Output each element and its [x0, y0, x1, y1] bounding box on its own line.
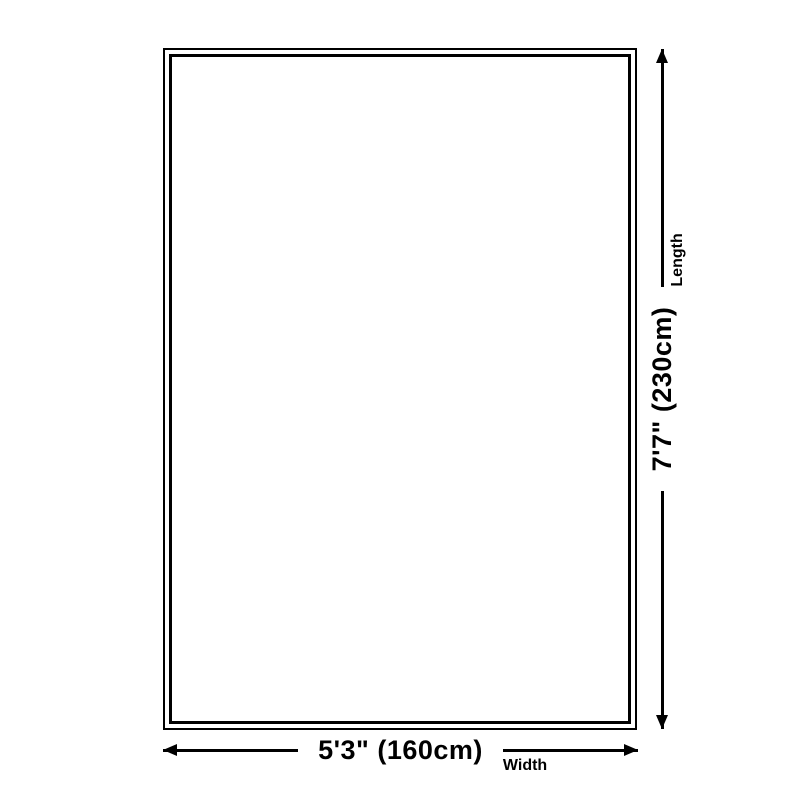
width-dimension-arrow: 5'3" (160cm) Width [163, 736, 638, 764]
arrow-left-icon [163, 744, 177, 756]
width-value: 5'3" (160cm) [318, 737, 483, 764]
width-dimension-line-left [163, 749, 298, 752]
length-value: 7'7" (230cm) [649, 307, 676, 472]
length-dimension-line-bottom [661, 491, 664, 729]
rug-dimension-diagram: 5'3" (160cm) Width 7'7" (230cm) Length [0, 0, 800, 800]
rug-inner-border [169, 54, 631, 724]
arrow-up-icon [656, 49, 668, 63]
arrow-right-icon [624, 744, 638, 756]
rug-outline [163, 48, 637, 730]
length-axis-label: Length [670, 233, 686, 286]
length-dimension-line-top: Length [661, 49, 664, 287]
length-dimension-arrow: 7'7" (230cm) Length [648, 49, 676, 729]
arrow-down-icon [656, 715, 668, 729]
width-dimension-line-right: Width [503, 749, 638, 752]
width-axis-label: Width [503, 758, 547, 774]
